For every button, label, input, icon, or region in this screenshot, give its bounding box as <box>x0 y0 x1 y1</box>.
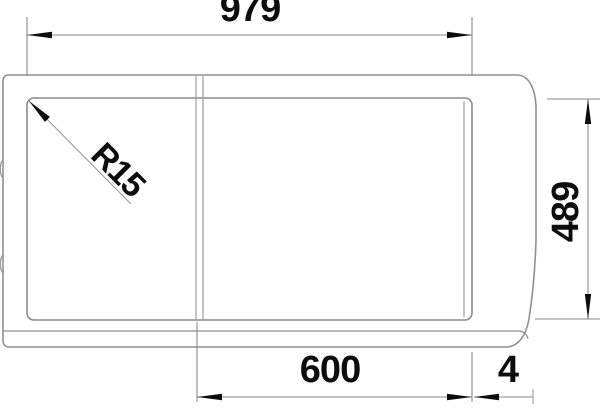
dim-label-top-width: 979 <box>220 0 280 28</box>
arrowhead-right-top <box>585 99 591 124</box>
cutout-outline <box>27 98 472 320</box>
rim-step-line <box>3 331 528 339</box>
sink-outer-contour <box>3 75 536 347</box>
arrowhead-bottom-left <box>197 394 222 400</box>
sink-outline-drawing <box>0 0 600 408</box>
arrowhead-gap-outside <box>474 394 499 400</box>
arrowhead-bottom-right <box>447 394 472 400</box>
dim-label-right-depth: 489 <box>547 182 585 242</box>
dim-label-bowl-width: 600 <box>300 351 360 389</box>
dim-label-edge-gap: 4 <box>498 351 518 389</box>
arrowhead-top-right <box>447 32 472 38</box>
arrowhead-radius <box>29 101 50 122</box>
technical-drawing-canvas: 979 489 600 4 R15 <box>0 0 600 408</box>
arrowhead-right-bottom <box>585 294 591 319</box>
arrowhead-top-left <box>27 32 52 38</box>
